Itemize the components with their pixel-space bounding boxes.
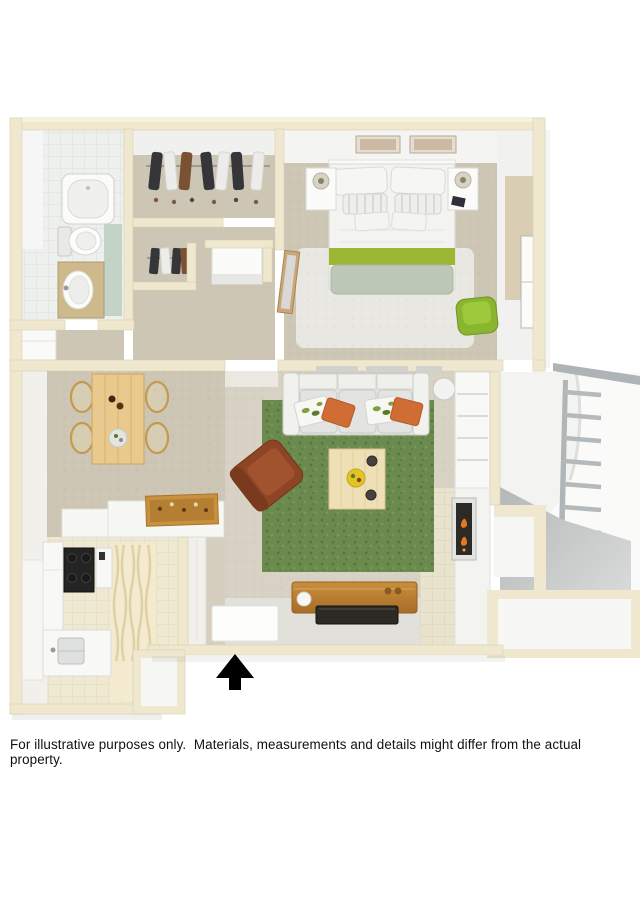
accent-chair-green <box>455 296 499 336</box>
nightstand-right <box>448 168 478 210</box>
coffee-table <box>329 449 385 509</box>
dresser <box>212 246 262 284</box>
entry-doormat <box>212 606 278 641</box>
vase <box>297 592 311 606</box>
bathroom-accent-tile <box>104 224 122 316</box>
kitchen-cabinets-left <box>21 560 43 680</box>
nightstand-left <box>306 168 336 210</box>
serving-tray <box>145 494 218 526</box>
snack-plate <box>347 469 365 487</box>
floorplan-image <box>0 0 640 730</box>
microwave <box>96 548 112 588</box>
bed-sage-blanket <box>331 265 453 294</box>
table-bowl-2 <box>366 490 376 500</box>
table-bowl <box>367 456 377 466</box>
toilet <box>58 227 101 256</box>
table-bottle-2 <box>117 403 124 410</box>
stove-cooktop <box>64 548 94 592</box>
vanity-sink <box>58 262 104 318</box>
kitchen-counter-sink <box>43 630 111 676</box>
fireplace <box>452 498 476 560</box>
floorplan-page: For illustrative purposes only. Material… <box>0 0 640 905</box>
side-table-round <box>433 378 455 400</box>
shelf-unit <box>455 372 490 488</box>
refrigerator <box>43 542 63 630</box>
dining-table <box>92 374 144 464</box>
bathtub <box>62 174 114 224</box>
bed <box>329 160 455 294</box>
sofa <box>283 373 429 435</box>
bed-green-stripe <box>329 248 455 265</box>
tv <box>316 606 398 624</box>
doorway-floor <box>225 371 278 387</box>
table-bottle <box>109 396 116 403</box>
disclaimer-text: For illustrative purposes only. Material… <box>10 737 630 767</box>
storage-closet <box>487 590 640 658</box>
window-ledge-marks <box>316 366 442 372</box>
table-plate <box>109 429 127 447</box>
entry-closet-interior <box>141 658 177 706</box>
